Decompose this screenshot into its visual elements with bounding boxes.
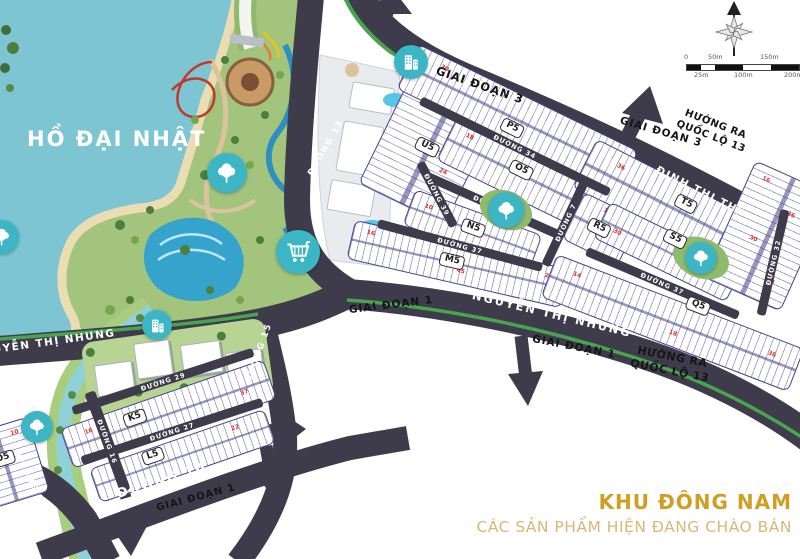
scale-segment bbox=[701, 65, 715, 70]
tree-icon[interactable] bbox=[488, 192, 524, 228]
tree-glyph bbox=[0, 225, 14, 248]
scale-tick: 50m bbox=[708, 54, 723, 61]
scale-tick: 100m bbox=[734, 72, 753, 79]
tree-icon[interactable] bbox=[685, 242, 717, 274]
building-icon[interactable] bbox=[142, 310, 172, 340]
building-icon[interactable] bbox=[394, 45, 428, 79]
cart-glyph bbox=[283, 237, 313, 267]
tree-glyph bbox=[213, 159, 240, 186]
tree-icon[interactable] bbox=[207, 153, 247, 193]
building-glyph bbox=[399, 50, 422, 73]
tree-glyph bbox=[494, 198, 518, 222]
area-title: KHU ĐÔNG NAM bbox=[599, 490, 792, 514]
masterplan-map: 16 24 30 14 18 37 10 16 45 22 36 64 12 3… bbox=[0, 0, 800, 559]
scale-segment bbox=[771, 65, 799, 70]
lake-name: HỒ ĐẠI NHẬT bbox=[27, 127, 206, 151]
scale-segment bbox=[743, 65, 771, 70]
scale-bar: 0 50m 150m 25m 100m 200m bbox=[686, 54, 800, 82]
cart-icon[interactable] bbox=[276, 230, 320, 274]
compass-rose-icon bbox=[696, 0, 772, 58]
apartment-building bbox=[133, 339, 174, 380]
tree-glyph bbox=[26, 416, 48, 438]
scale-tick: 150m bbox=[760, 54, 779, 61]
scale-segment bbox=[715, 65, 743, 70]
scale-bar-segments bbox=[686, 64, 800, 71]
scale-tick: 25m bbox=[694, 72, 709, 79]
scale-tick: 0 bbox=[684, 54, 688, 61]
building-glyph bbox=[147, 315, 167, 335]
area-subtitle: CÁC SẢN PHẨM HIỆN ĐANG CHÀO BÁN bbox=[477, 518, 792, 536]
tree-icon[interactable] bbox=[21, 411, 53, 443]
tree-glyph bbox=[690, 247, 712, 269]
scale-tick: 200m bbox=[784, 72, 800, 79]
scale-segment bbox=[687, 65, 701, 70]
